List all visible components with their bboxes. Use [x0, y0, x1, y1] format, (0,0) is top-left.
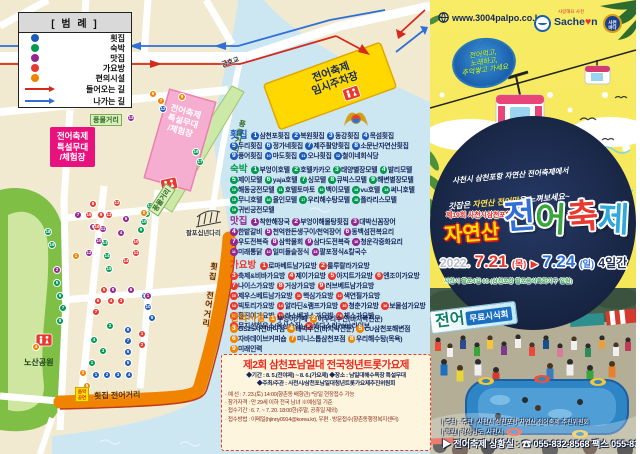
poi-item: 1부엉이카페 — [269, 316, 307, 323]
stage-callout: 전어축제특설무대/체험장 — [50, 127, 95, 167]
poi-number: 8 — [352, 142, 360, 150]
title-char: 제 — [597, 201, 630, 239]
map-marker-green: 5 — [53, 279, 61, 287]
poi-item: 7나이스가요방 — [230, 283, 274, 290]
website-row: www.3004palpo.co.kr — [438, 12, 543, 23]
poi-number: 1 — [251, 218, 259, 226]
poi-item: 2룰루랄라가요방 — [319, 263, 369, 270]
map-marker-green: 15 — [105, 265, 113, 273]
poi-number: 2 — [310, 315, 318, 323]
poi-item: 5두리횟집 — [230, 143, 262, 150]
poi-item: 11미래통닭 — [230, 249, 262, 256]
poi-number: 7 — [230, 238, 238, 246]
poi-item: 6자바데이브커피숍 — [230, 336, 286, 343]
poi-item: 15청춘가요방 — [340, 303, 378, 310]
poi-item: 18폴라리스모텔 — [352, 197, 396, 204]
poi-item: 12일미돌솥정식 — [265, 249, 309, 256]
poi-number: 16 — [381, 302, 389, 310]
map-marker-purple: 2 — [53, 266, 61, 274]
poi-number: 14 — [277, 302, 285, 310]
poi-number: 10 — [230, 186, 238, 194]
map-marker-green: 7 — [59, 304, 67, 312]
poi-number: 2 — [292, 218, 300, 226]
map-marker-red: 16 — [93, 223, 101, 231]
poi-number: 3 — [230, 325, 238, 333]
sacheon-slogan-script: 사랑해요 사천 — [558, 9, 584, 15]
poi-number: 1 — [251, 166, 259, 174]
poi-item: 1착한해장국 — [251, 219, 289, 226]
trot-contest-notice: 제2회 삼천포남일대 전국청년트롯가요제 ◆기간 : 8. 5.(전야제) ~ … — [221, 354, 431, 451]
notice-title: 제2회 삼천포남일대 전국청년트롯가요제 — [225, 357, 427, 372]
map-marker-purple: 1 — [144, 292, 152, 300]
poi-item: 7싱모텔 — [300, 177, 326, 184]
notice-line: ◆기간 : 8. 5.(전야제) ~ 8. 6.(가요제) ◆장소 : 남일대해… — [225, 372, 427, 380]
poi-item: 11오나횟집 — [299, 153, 331, 160]
poi-item: 3동강횟집 — [327, 133, 359, 140]
arrow-right-icon: ▶ — [531, 259, 538, 269]
sea-cablecar-logo-icon: 사천바다 — [603, 14, 622, 33]
map-marker-blue: 2 — [103, 371, 111, 379]
poi-number: 11 — [295, 292, 303, 300]
poi-number: 4 — [230, 228, 238, 236]
poi-item: 16올인모텔 — [265, 197, 297, 204]
poi-number: 18 — [352, 196, 360, 204]
poi-item: 13vu호텔 — [352, 187, 380, 194]
poi-item: 4목섬횟집 — [362, 133, 394, 140]
poi-item: 17우리해수탕모텔 — [299, 197, 349, 204]
poi-item: 8삼학물회 — [271, 239, 303, 246]
category-header: 횟집 — [230, 130, 247, 141]
map-marker-green: 14 — [103, 252, 111, 260]
pungmul-street-tag: 풍물거리 — [90, 114, 122, 126]
poi-number: 5 — [356, 325, 364, 333]
map-marker-blue: 7 — [124, 337, 132, 345]
map-marker-red: 8 — [89, 200, 97, 208]
poi-number: 11 — [230, 248, 238, 256]
map-marker-red: 14 — [122, 257, 130, 265]
date-to: 7.24 — [542, 252, 575, 271]
poi-number: 5 — [328, 272, 336, 280]
poi-number: 10 — [230, 292, 238, 300]
map-marker-blue: 3 — [114, 371, 122, 379]
poi-number: 6 — [265, 176, 273, 184]
page-margin — [636, 0, 640, 454]
poi-item: 2호텔카카오 — [292, 167, 330, 174]
poi-number: 10 — [265, 152, 273, 160]
poi-item: 4제이가요방 — [288, 273, 326, 280]
website-url: www.3004palpo.co.kr — [452, 13, 543, 23]
host-line: | 주최 · 주관 | 사천시 삼천포항 자연산 전어축제 추진위원회 — [442, 417, 589, 426]
poi-number: 8 — [271, 238, 279, 246]
poi-number: 12 — [318, 186, 326, 194]
legend-item: 편의시설 — [19, 73, 131, 83]
poi-category-편의시설: 편의시설1부엉이카페2어우리수산(바지락전문)3GS25사천바다점4대박수산(바… — [230, 314, 429, 355]
map-marker-red: 4 — [107, 297, 115, 305]
legend-arrow-item: 들어오는 길 — [19, 83, 131, 95]
park-label: 노산공원 — [24, 357, 53, 368]
poi-item: 11핵심가요방 — [295, 293, 333, 300]
legend-item: 가요방 — [19, 63, 131, 73]
title-natural: 자연산 — [443, 215, 500, 248]
red-arrow-icon — [25, 88, 49, 90]
poi-number: 9 — [305, 238, 313, 246]
map-marker-orange: 8 — [140, 209, 148, 217]
legend-title: [ 범 례 ] — [19, 13, 131, 33]
notice-detail-line: · 예 선 : 7. 23.(토) 14:00(향촌동 배향관) *당일 현장접… — [225, 391, 427, 399]
poi-item: 14알라딘&램프가요방 — [277, 303, 338, 310]
map-marker-green: 8 — [56, 317, 64, 325]
map-marker-green: 2 — [106, 322, 114, 330]
poi-number: 13 — [230, 302, 238, 310]
poi-number: 16 — [265, 196, 273, 204]
map-marker-red: 15 — [85, 211, 93, 219]
poi-number: 5 — [265, 228, 273, 236]
festival-title: 전어축제 — [504, 200, 629, 236]
poi-item: 13팔포정식&칼국수 — [312, 249, 367, 256]
map-marker-purple: 4 — [117, 229, 125, 237]
poi-item: 9러브베트남가요방 — [318, 283, 374, 290]
poi-item: 5제이모텔 — [230, 177, 262, 184]
map-marker-purple: 9 — [109, 286, 117, 294]
poi-item: 6엔조이가요방 — [375, 273, 419, 280]
poi-number: 6 — [265, 142, 273, 150]
poi-number: 7 — [300, 176, 308, 184]
poi-number: 5 — [230, 142, 238, 150]
map-marker-orange: 6 — [149, 90, 157, 98]
poi-number: 19 — [230, 206, 238, 214]
poi-item: 3대박신꼼장어 — [351, 219, 395, 226]
map-marker-purple: 12 — [85, 249, 93, 257]
poi-item: 5천억한돈생구이/천억장어 — [265, 229, 341, 236]
poi-item: 8거상가요방 — [277, 283, 315, 290]
map-marker-green: 18 — [44, 228, 52, 236]
nosan-park-inner — [8, 212, 48, 412]
poi-item: 4대박수산(바지락전문) — [287, 326, 354, 333]
poi-number: 9 — [230, 345, 238, 353]
poi-number: 11 — [277, 186, 285, 194]
title-char: 전 — [503, 198, 537, 236]
map-marker-red: 5 — [100, 286, 108, 294]
poi-item: 10마도횟집 — [265, 153, 297, 160]
poi-item: 9삼다도전복죽 — [305, 239, 349, 246]
map-marker-red: 10 — [132, 238, 140, 246]
poi-number: 10 — [352, 238, 360, 246]
category-header: 숙박 — [230, 164, 247, 175]
poi-item: 9풍어횟집 — [230, 153, 262, 160]
poi-number: 4 — [362, 132, 370, 140]
poi-item: 7우도전복죽 — [230, 239, 268, 246]
poi-item: 10제우스베트남가요방 — [230, 293, 292, 300]
map-marker-red: 2 — [138, 341, 146, 349]
legend-arrow-item: 나가는 길 — [19, 95, 131, 107]
poi-number: 17 — [299, 196, 307, 204]
poi-item: 6yaja호텔 — [265, 177, 298, 184]
poi-number: 1 — [260, 262, 268, 270]
purple-dot-icon — [31, 54, 39, 62]
poi-number: 2 — [319, 262, 327, 270]
legend-item-label: 나가는 길 — [55, 96, 125, 107]
poi-number: 6 — [344, 228, 352, 236]
poi-number: 15 — [340, 302, 348, 310]
poi-item: 11호텔토마토 — [277, 187, 315, 194]
map-marker-red: 7 — [92, 308, 100, 316]
map-marker-green: 19 — [48, 241, 56, 249]
poi-number: 13 — [312, 248, 320, 256]
blue-dot-icon — [31, 34, 39, 42]
poi-item: 15무니호텔 — [230, 197, 262, 204]
date-from-day: (목) — [512, 259, 526, 269]
map-marker-orange: 1 — [72, 252, 80, 260]
poi-item: 19귀빈궁전모텔 — [230, 207, 274, 214]
poi-item: 7제주활양횟집 — [305, 143, 349, 150]
title-char: 축 — [565, 198, 599, 236]
poi-category-횟집: 횟집1삼천포횟집2복원횟집3동강횟집4목섬횟집5두리횟집6정가네횟집7제주활양횟… — [230, 131, 429, 162]
poi-number: 7 — [289, 335, 297, 343]
category-header: 가요방 — [230, 260, 256, 271]
poi-number: 7 — [305, 142, 313, 150]
legend-item-label: 편의시설 — [39, 73, 125, 84]
map-legend: [ 범 례 ] 횟집숙박맛집가요방편의시설들어오는 길나가는 길 — [18, 12, 132, 108]
poi-number: 12 — [336, 292, 344, 300]
poi-number: 1 — [251, 132, 259, 140]
map-marker-purple: 7 — [74, 211, 82, 219]
poi-item: 4한밭갈비 — [230, 229, 262, 236]
green-dot-icon — [31, 44, 39, 52]
poi-item: 1삼천포횟집 — [251, 133, 289, 140]
poi-item: 9미래인력 — [230, 346, 262, 353]
sacheon-logo-text: Sache — [554, 16, 585, 28]
poi-number: 14 — [382, 186, 390, 194]
venue-address: 사천시 팔포4길 65 (삼천포항 팔포음식특화지구 일원) — [444, 276, 572, 285]
poi-number: 11 — [299, 152, 307, 160]
legend-item: 숙박 — [19, 43, 131, 53]
poi-item: 8소문난자연산횟집 — [352, 143, 408, 150]
date-to-day: (일) — [580, 259, 594, 269]
poi-number: 12 — [334, 152, 342, 160]
date-duration: 4일간 — [598, 256, 627, 270]
map-marker-red: 13 — [105, 211, 113, 219]
contact-line: ▶ 전어축제 상황실 : ☎ 055-832-8568 팩스 055-835-4… — [442, 437, 636, 450]
map-marker-red: 3 — [117, 297, 125, 305]
poi-category-맛집: 맛집1착한해장국2부엉이해물탕횟집3대박신꼼장어4한밭갈비5천억한돈생구이/천억… — [230, 217, 429, 258]
map-marker-green: 3 — [99, 347, 107, 355]
poi-number: 3 — [327, 132, 335, 140]
poi-item: 13빅토리가요방 — [230, 303, 274, 310]
poi-number: 2 — [292, 166, 300, 174]
poi-number: 12 — [265, 248, 273, 256]
map-marker-green: 17 — [196, 158, 204, 166]
fish-street-label: 횟집 전어거리 — [94, 389, 141, 402]
poi-number: 6 — [375, 272, 383, 280]
map-marker-green: 4 — [90, 336, 98, 344]
map-marker-green: 10 — [140, 218, 148, 226]
poi-item: 2부엉이해물탕횟집 — [292, 219, 348, 226]
poi-number: 8 — [328, 176, 336, 184]
map-marker-green: 16 — [192, 148, 200, 156]
poi-item: 7미니스톱삼천포점 — [289, 336, 345, 343]
poi-number: 3 — [333, 166, 341, 174]
banner-subword: 무료시식회 — [466, 306, 512, 325]
poi-item: 6정가네횟집 — [265, 143, 303, 150]
map-marker-orange: 9 — [178, 93, 186, 101]
poi-item: 8큐빅스모텔 — [328, 177, 366, 184]
map-marker-green: 1 — [88, 359, 96, 367]
category-header: 편의시설 — [230, 313, 265, 324]
bridge-label-palpo: 팔포십년다리 — [186, 228, 221, 237]
poi-item: 10해동궁전모텔 — [230, 187, 274, 194]
banner-word: 전어 — [434, 310, 465, 330]
festival-poster: www.3004palpo.co.kr 사랑해요 사천 Sache♥n 사천바다… — [430, 0, 636, 454]
notice-detail-line: · 접수기간 : 6. 7. ~ 7. 20. 18:00한(주말, 공휴일 제… — [225, 407, 427, 415]
poi-number: 7 — [230, 282, 238, 290]
notice-details: · 예 선 : 7. 23.(토) 14:00(향촌동 배향관) *당일 현장접… — [225, 391, 427, 424]
map-marker-green: 6 — [56, 292, 64, 300]
poi-number: 3 — [351, 218, 359, 226]
category-header: 맛집 — [230, 216, 247, 227]
legend-item-label: 들어오는 길 — [55, 84, 125, 95]
map-marker-green: 9 — [137, 226, 145, 234]
legend-item: 맛집 — [19, 53, 131, 63]
poi-item: 2복원횟집 — [292, 133, 324, 140]
map-marker-orange: 4 — [32, 343, 40, 351]
website-icon — [438, 12, 449, 23]
notice-detail-line: · 참가자격 : 만 29세 이하 전국 남녀 ※예심일 기준 — [225, 399, 427, 407]
map-marker-purple: 13 — [127, 114, 135, 122]
map-marker-blue: 4 — [125, 371, 133, 379]
sacheon-logo-text: n — [591, 16, 597, 28]
poi-item: 1부엉이호텔 — [251, 167, 289, 174]
legend-item: 횟집 — [19, 33, 131, 43]
map-marker-red: 11 — [132, 249, 140, 257]
notice-detail-line: · 접수방법 : 이메일(hjinny0914@korea.kr), 우편 · … — [225, 416, 427, 424]
poi-item: 6동백섬전복요리 — [344, 229, 394, 236]
poi-number: 13 — [352, 186, 360, 194]
poi-item: 12색연필가요방 — [336, 293, 380, 300]
poi-number: 4 — [287, 325, 295, 333]
map-marker-red: 9 — [97, 211, 105, 219]
notice-line: ◆주최/주관 : 사천시/삼천포남일대청년트롯가요제추진위원회 — [225, 380, 427, 388]
red-dot-icon — [31, 64, 39, 72]
poi-item: 4발리모텔 — [380, 167, 412, 174]
map-marker-blue: 1 — [92, 371, 100, 379]
poi-item: 12철이네회식당 — [334, 153, 378, 160]
map-marker-blue: 8 — [124, 326, 132, 334]
map-marker-blue: 9 — [148, 314, 156, 322]
city-logo-icon — [534, 15, 551, 32]
music-sign: 음악공연 — [75, 387, 89, 402]
blue-arrow-icon — [25, 100, 49, 102]
map-marker-orange: 2 — [79, 369, 87, 377]
poi-category-숙박: 숙박1부엉이호텔2호텔카카오3태양별장모텔4발리모텔5제이모텔6yaja호텔7싱… — [230, 165, 429, 216]
poi-number: 9 — [369, 176, 377, 184]
support-line: | 후원 | 경상남도, 사천시 — [442, 427, 503, 436]
poi-number: 4 — [288, 272, 296, 280]
poi-number: 8 — [277, 282, 285, 290]
poi-number: 5 — [230, 176, 238, 184]
poi-number: 3 — [230, 272, 238, 280]
orange-dot-icon — [31, 74, 39, 82]
map-marker-purple: 5 — [122, 215, 130, 223]
festival-flyer: [ 범 례 ] 횟집숙박맛집가요방편의시설들어오는 길나가는 길 금호교 팔포십… — [0, 0, 640, 454]
map-marker-red: 12 — [113, 199, 121, 207]
legend-body: 횟집숙박맛집가요방편의시설들어오는 길나가는 길 — [19, 33, 131, 107]
poi-item: 3태양별장모텔 — [333, 167, 377, 174]
map-marker-red: 1 — [138, 330, 146, 338]
date-from: 7.21 — [474, 252, 507, 271]
sacheon-logo: Sache♥n — [554, 16, 598, 28]
poi-item: 1로마베트남가요방 — [260, 263, 316, 270]
date-year: 2022. — [440, 256, 470, 270]
poi-item: 3축제&비바가요방 — [230, 273, 285, 280]
map-marker-blue: 10 — [144, 303, 152, 311]
map-marker-red: 6 — [94, 297, 102, 305]
poi-item: 5CU삼천포해변점 — [356, 326, 410, 333]
poi-item: 10청운각중화요리 — [352, 239, 402, 246]
map-marker-blue: 6 — [124, 348, 132, 356]
poi-item: 8우리해수탕(목욕) — [348, 336, 403, 343]
poi-number: 2 — [292, 132, 300, 140]
poi-item: 16보물섬가요방 — [381, 303, 425, 310]
poi-item: 3GS25사천바다점 — [230, 326, 285, 333]
poi-number: 1 — [269, 315, 277, 323]
poi-number: 15 — [230, 196, 238, 204]
map-marker-purple: 6 — [127, 286, 135, 294]
title-char: 어 — [534, 201, 567, 239]
map-marker-blue: 5 — [124, 359, 132, 367]
poi-item: 14써니호텔 — [382, 187, 414, 194]
poi-number: 8 — [348, 335, 356, 343]
poi-number: 4 — [380, 166, 388, 174]
poi-item: 9해변별장모텔 — [369, 177, 413, 184]
poi-item: 12백이모텔 — [318, 187, 350, 194]
festival-dates: 2022. 7.21 (목) ▶ 7.24 (일) 4일간 — [440, 252, 627, 272]
poi-number: 9 — [318, 282, 326, 290]
poi-number: 9 — [230, 152, 238, 160]
poi-item: 2어우리수산(바지락전문) — [310, 316, 383, 323]
poi-item: 5아지트가요방 — [328, 273, 372, 280]
map-marker-purple: 10 — [95, 237, 103, 245]
poi-number: 6 — [230, 335, 238, 343]
